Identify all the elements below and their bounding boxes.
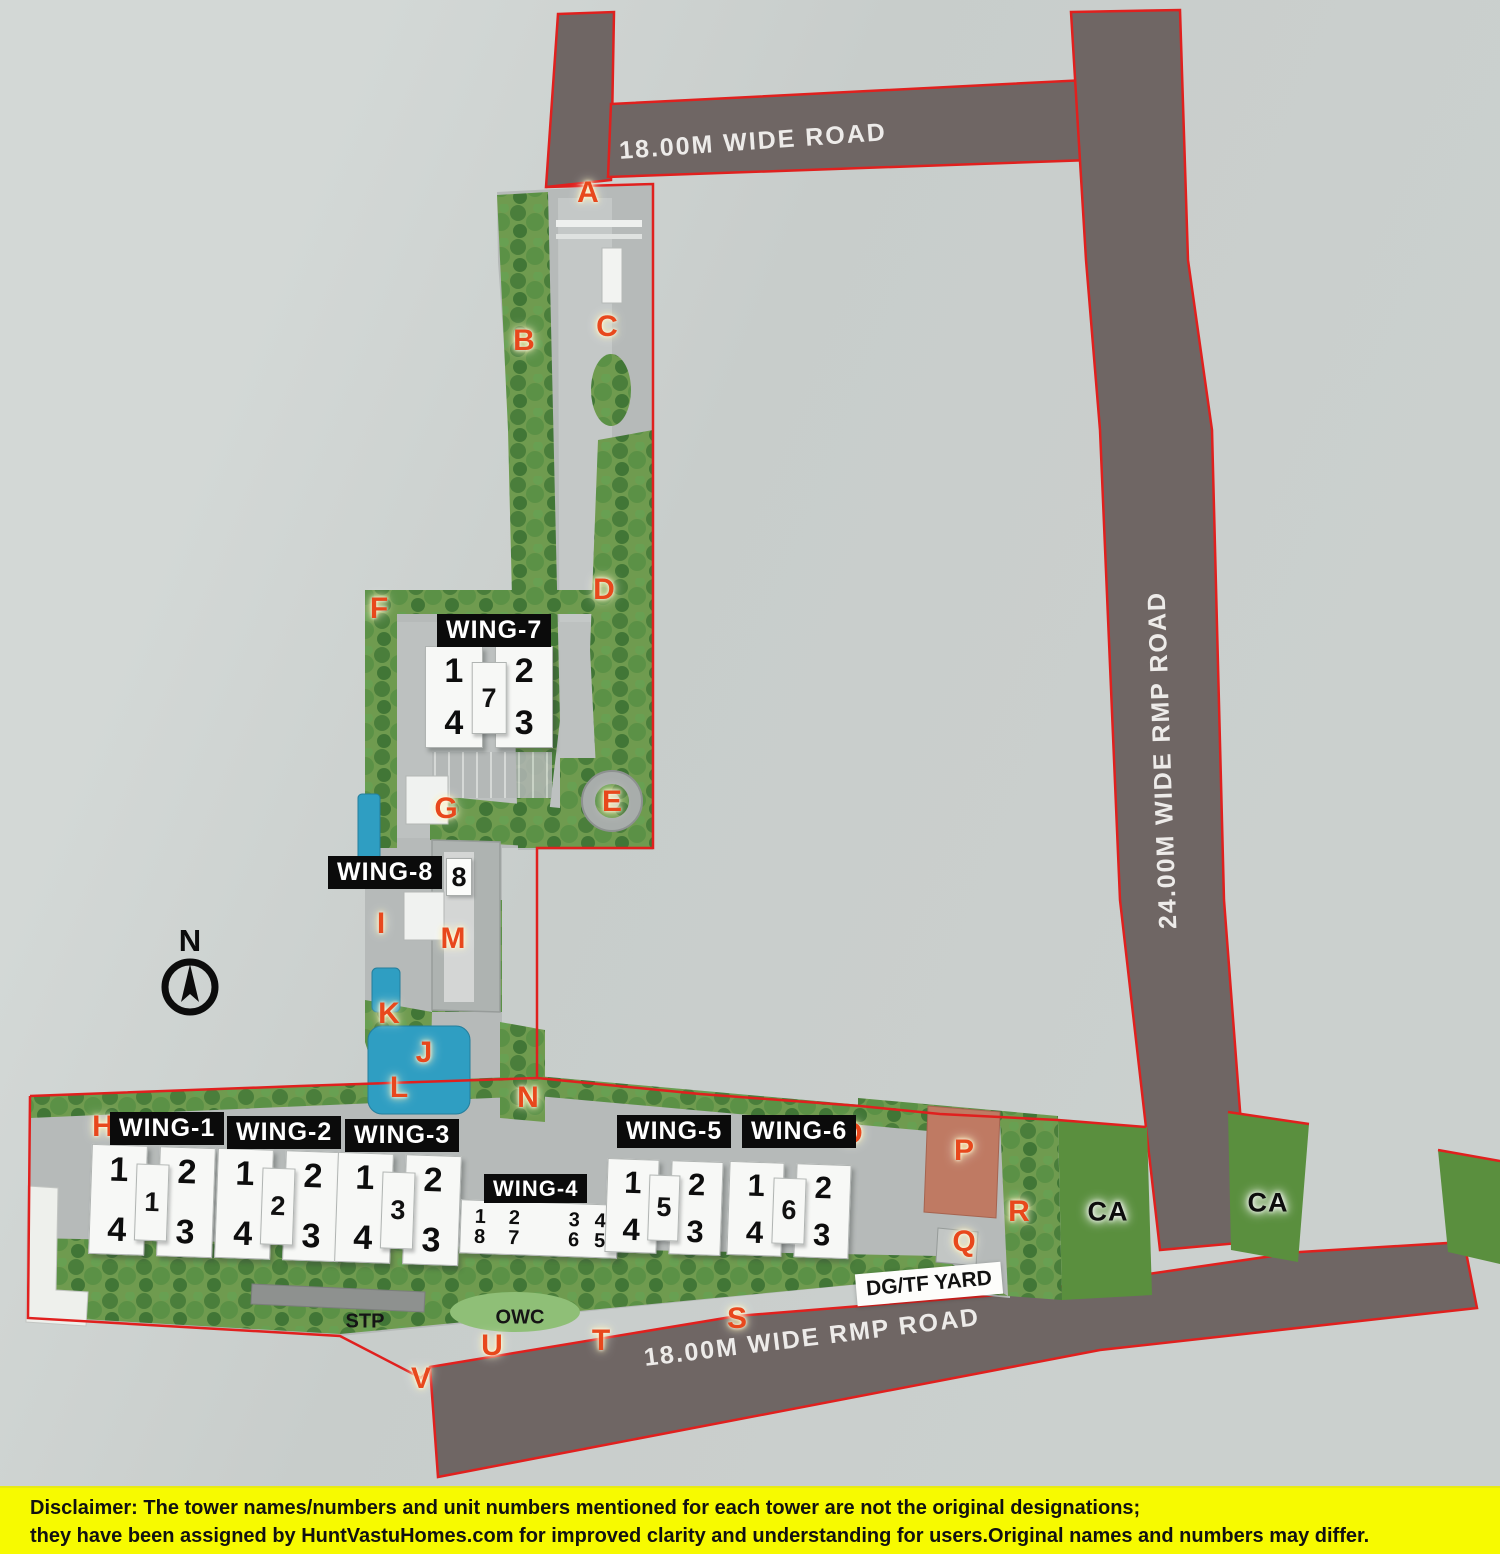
disclaimer-banner: Disclaimer: The tower names/numbers and … — [0, 1486, 1500, 1554]
ca-left-label: CA — [1088, 1197, 1129, 1228]
wing7-core-number: 7 — [472, 662, 507, 733]
stp-label: STP — [346, 1311, 385, 1334]
wing2-building: 1 4 2 3 2 — [214, 1148, 342, 1262]
marker-g: G — [434, 794, 457, 824]
site-plan: 18.00M WIDE ROAD 24.00M WIDE RMP ROAD 18… — [0, 0, 1500, 1554]
wing4-label: WING-4 — [484, 1174, 587, 1203]
ca-right-label: CA — [1248, 1188, 1289, 1219]
disclaimer-line2: they have been assigned by HuntVastuHome… — [30, 1522, 1500, 1550]
wing7-label: WING-7 — [437, 614, 551, 647]
wing3-building: 1 4 2 3 3 — [334, 1152, 462, 1266]
marker-e: E — [602, 787, 622, 817]
wing8-core-number: 8 — [446, 858, 472, 896]
wing8-label: WING-8 — [328, 856, 442, 889]
marker-l: L — [390, 1073, 408, 1103]
wing5-core-number: 5 — [647, 1175, 681, 1242]
marker-n: N — [517, 1083, 539, 1113]
marker-f: F — [370, 594, 388, 624]
marker-t: T — [592, 1326, 610, 1356]
marker-d: D — [593, 575, 615, 605]
wing1-core-number: 1 — [134, 1163, 170, 1241]
marker-q: Q — [952, 1227, 975, 1257]
marker-p: P — [954, 1136, 974, 1166]
marker-c: C — [596, 312, 618, 342]
wing5-building: 1 4 2 3 5 — [604, 1158, 723, 1256]
wing1-label: WING-1 — [110, 1112, 224, 1145]
compass-icon — [165, 962, 215, 1012]
wing4-building: 18 27 36 45 — [459, 1199, 619, 1258]
wing4-units-3-6: 36 — [560, 1210, 587, 1251]
marker-m: M — [441, 924, 466, 954]
compass-north-label: N — [179, 923, 201, 959]
owc-label: OWC — [496, 1307, 545, 1330]
wing6-label: WING-6 — [742, 1115, 856, 1148]
marker-i: I — [377, 909, 385, 939]
wing6-building: 1 4 2 3 6 — [726, 1161, 851, 1259]
marker-r: R — [1008, 1197, 1030, 1227]
marker-v: V — [411, 1364, 431, 1394]
marker-j: J — [416, 1038, 433, 1068]
marker-a: A — [577, 178, 599, 208]
wing3-label: WING-3 — [345, 1119, 459, 1152]
marker-k: K — [378, 999, 400, 1029]
wing6-core-number: 6 — [771, 1177, 806, 1244]
wing2-label: WING-2 — [227, 1116, 341, 1149]
green-island — [591, 354, 631, 426]
road-top-left-stub — [546, 12, 614, 187]
wing1-building: 1 4 2 3 1 — [88, 1144, 216, 1258]
wing2-core-number: 2 — [260, 1167, 296, 1245]
wing7-building: 1 4 2 3 7 — [425, 646, 553, 748]
site-plan-drawing — [0, 0, 1500, 1554]
marker-s: S — [727, 1304, 747, 1334]
wing5-label: WING-5 — [617, 1115, 731, 1148]
disclaimer-line1: Disclaimer: The tower names/numbers and … — [30, 1494, 1500, 1522]
wing4-units-2-7: 27 — [500, 1208, 527, 1249]
wing3-core-number: 3 — [380, 1171, 416, 1249]
disclaimer-prefix: Disclaimer: — [30, 1497, 138, 1519]
marker-u: U — [481, 1331, 503, 1361]
wing4-units-1-8: 18 — [466, 1206, 493, 1247]
marker-b: B — [513, 326, 535, 356]
